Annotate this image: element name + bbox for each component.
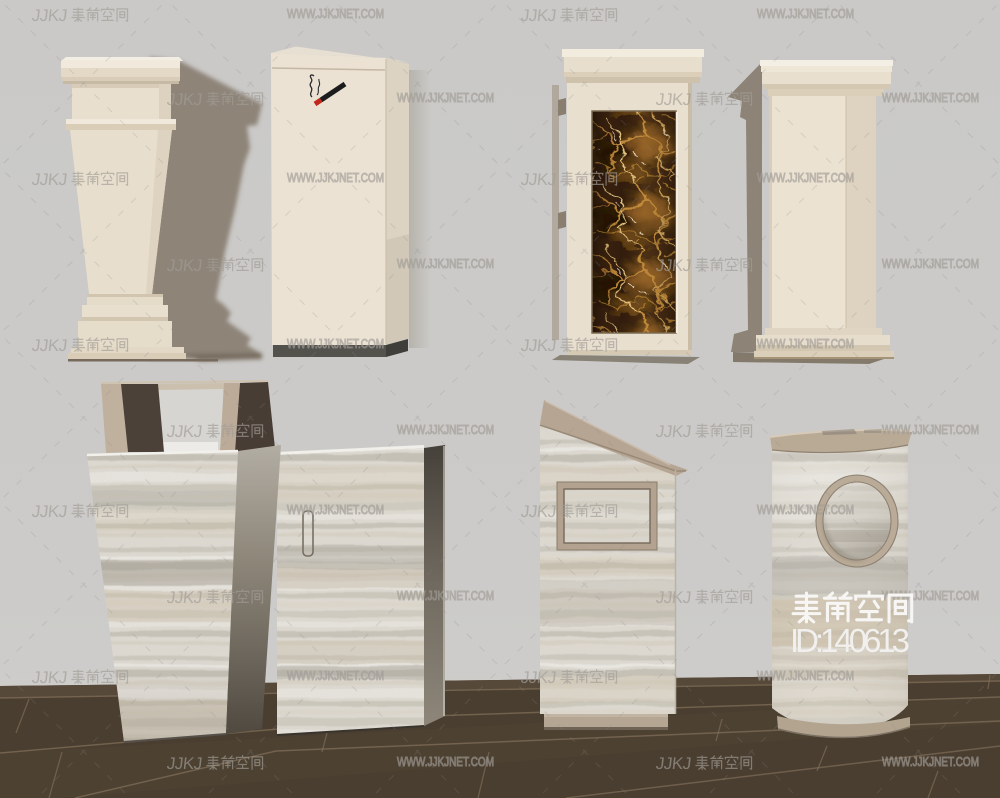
svg-text:ID:140613: ID:140613 (790, 622, 910, 659)
